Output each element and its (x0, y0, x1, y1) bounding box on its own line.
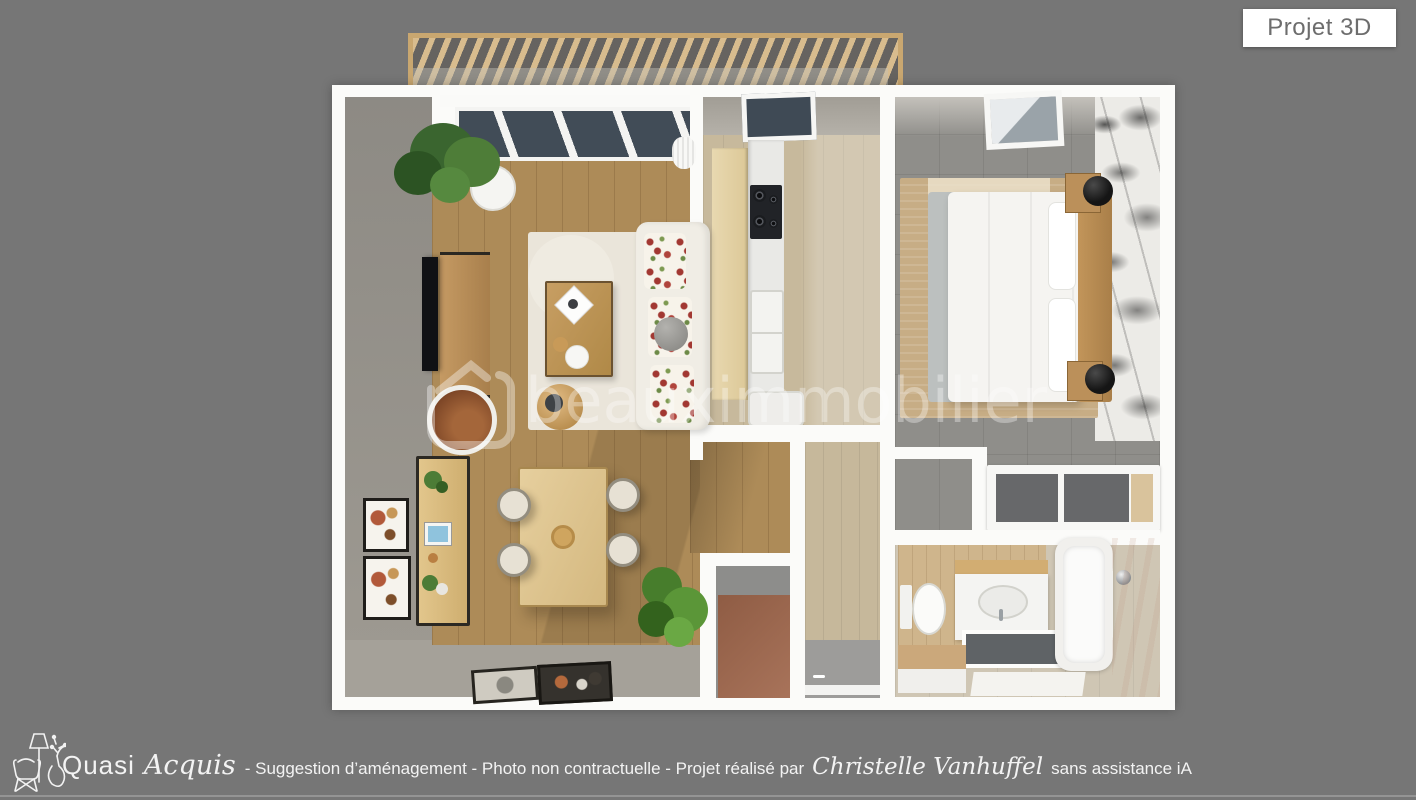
badge-label: Projet 3D (1267, 14, 1372, 42)
leather-armchair (427, 385, 497, 455)
wall-art-frame (363, 498, 409, 552)
sink-basin (978, 585, 1028, 619)
bath-mat (970, 672, 1085, 696)
toilet (912, 583, 946, 635)
dining-chair (606, 478, 640, 512)
table-centerpiece (551, 525, 575, 549)
veranda-beam (440, 95, 690, 107)
cooktop (750, 185, 782, 239)
kitchen-appliance (748, 391, 804, 427)
dining-chair (497, 488, 531, 522)
footer: Quasi Acquis - Suggestion d’aménagement … (0, 728, 1416, 800)
caption-text: - Suggestion d’aménagement - Photo non c… (245, 759, 804, 779)
toilet-tank (900, 585, 912, 629)
kitchen-bottom-wall (703, 425, 895, 442)
author-name: Christelle Vanhuffel (812, 754, 1043, 780)
tray-decor (568, 299, 578, 309)
bathtub-interior (1063, 546, 1105, 663)
pergola-shadow (413, 68, 888, 86)
rattan-ball-decor (537, 384, 583, 430)
faucet (999, 609, 1003, 621)
dressing-wall (972, 455, 987, 530)
entry-door (805, 685, 880, 695)
tv-screen (422, 257, 438, 371)
door-handle (813, 675, 825, 678)
doormat (471, 666, 539, 705)
white-vase (672, 137, 696, 169)
entry-alcove-floor (718, 595, 790, 698)
dining-chair (497, 543, 531, 577)
bathroom-travertine-wall (1112, 538, 1160, 697)
bedside-lamp (1085, 364, 1115, 394)
tv-sideboard (440, 252, 490, 398)
wall-art-frame (363, 556, 411, 620)
hallway-left-wall (790, 442, 805, 698)
central-wall (880, 85, 895, 710)
floral-cushion (644, 233, 686, 289)
kitchen-wood-counter (712, 148, 748, 400)
project-3d-badge: Projet 3D (1243, 9, 1396, 47)
dining-nook-floor (690, 440, 790, 553)
caption-end: sans assistance iA (1051, 759, 1192, 779)
floor-plan (332, 85, 1175, 710)
dining-chair (606, 533, 640, 567)
shelf-dish (436, 583, 448, 595)
bedside-lamp (1083, 176, 1113, 206)
footer-caption: Quasi Acquis - Suggestion d’aménagement … (62, 750, 1192, 781)
bed-pillow (1048, 202, 1076, 290)
screenshot-stage: beauximmobilier Projet 3D Quasi Acquis -… (0, 0, 1416, 800)
shelf-plant (436, 481, 448, 493)
bathroom-bench-front (898, 669, 966, 693)
floral-armchair (650, 365, 694, 423)
decor-plate (565, 345, 589, 369)
entry-alcove-top-wall (703, 553, 790, 566)
kitchen-sink (750, 290, 784, 374)
bedroom-skylight (984, 90, 1065, 150)
brand-name-script: Acquis (144, 750, 236, 781)
entry-alcove-left-wall (703, 553, 716, 698)
bottom-divider (0, 795, 1416, 797)
shelf-bowl (428, 553, 438, 563)
wardrobe-divider (1058, 474, 1064, 522)
gray-pouf (654, 317, 688, 351)
shelf-picture-frame (425, 523, 451, 545)
kitchen-skylight (741, 92, 817, 143)
brand-name-regular: Quasi (62, 750, 135, 781)
decor-bowl (553, 337, 568, 352)
bathroom-bench (898, 645, 966, 671)
doormat (537, 661, 613, 705)
brand-logo-icon (12, 730, 66, 794)
wardrobe-wood-shelf (1131, 474, 1153, 522)
